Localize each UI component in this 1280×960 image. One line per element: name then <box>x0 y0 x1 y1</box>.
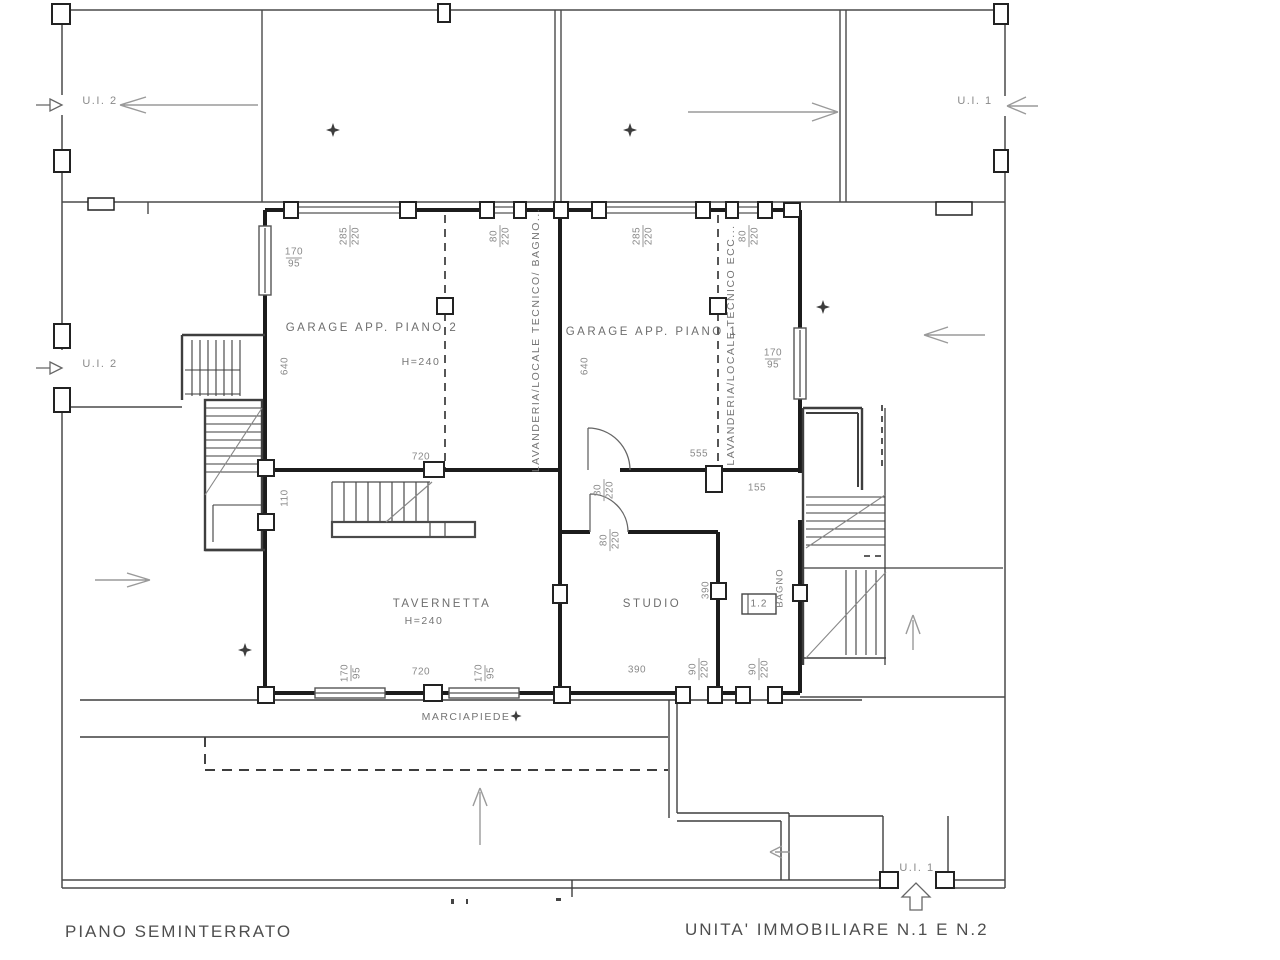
dim-tav-window-right: 170 95 <box>474 664 497 682</box>
sidewalk-and-lower-walls <box>80 700 948 897</box>
dim-mid-top-door: 80 220 <box>489 225 512 247</box>
stair-left <box>182 335 265 550</box>
sheet-title-floor: PIANO SEMINTERRATO <box>65 922 292 942</box>
dim-garage2-window: 170 95 <box>285 247 303 270</box>
dim-value: 170 <box>340 664 351 682</box>
stair-right <box>803 408 1003 665</box>
arrow-ui1-top <box>1007 97 1038 114</box>
room-label-garage2: GARAGE APP. PIANO 2 <box>286 322 459 334</box>
unit-label-ui2-side: U.I. 2 <box>82 358 117 370</box>
unit-label-ui1-bottom: U.I. 1 <box>899 862 934 874</box>
room-label-tavernetta-height: H=240 <box>405 615 444 627</box>
dim-value: 80 <box>599 534 610 546</box>
dim-value: 90 <box>688 663 699 675</box>
floor-plan-sheet: U.I. 2 U.I. 1 U.I. 2 U.I. 1 GARAGE APP. … <box>0 0 1280 960</box>
dim-value: 80 <box>489 230 500 242</box>
dim-value: 220 <box>604 479 616 501</box>
dim-value: 220 <box>759 658 771 680</box>
dim-bottom-door1: 90 220 <box>688 658 711 680</box>
arrow-bottom-up <box>473 788 487 845</box>
dim-value: 90 <box>748 663 759 675</box>
dim-value: 80 <box>593 484 604 496</box>
dim-value: 220 <box>610 529 622 551</box>
stair-middle <box>332 482 475 537</box>
arrow-top-left <box>120 97 258 113</box>
fixture-label: 1.2 <box>751 599 768 610</box>
room-label-laundry1: LAVANDERIA/LOCALE TECNICO ECC... <box>725 224 737 465</box>
arrow-small-left <box>770 846 790 858</box>
dim-studio-depth: 390 <box>701 581 712 599</box>
bottom-ticks <box>451 898 561 904</box>
arrow-top-middle-right <box>688 103 838 121</box>
dim-value: 285 <box>339 227 350 245</box>
sheet-title-units: UNITA' IMMOBILIARE N.1 E N.2 <box>685 920 989 940</box>
entry-arrow-ui1-bottom <box>902 883 930 910</box>
dim-value: 285 <box>632 227 643 245</box>
arrow-stair-up <box>906 615 920 650</box>
dim-garage2-width: 720 <box>412 452 430 463</box>
dim-right-top-door: 80 220 <box>738 225 761 247</box>
dim-value: 95 <box>485 665 497 681</box>
dim-garage1-door: 285 220 <box>632 225 655 247</box>
room-label-bagno: BAGNO <box>775 568 786 607</box>
dim-value: 170 <box>474 664 485 682</box>
dim-value: 95 <box>351 665 363 681</box>
floor-plan-drawing <box>0 0 1280 960</box>
dim-garage2-door: 285 220 <box>339 225 362 247</box>
dim-corridor-width: 155 <box>748 483 766 494</box>
unit-label-ui2-top: U.I. 2 <box>82 95 117 107</box>
label-marciapiede: MARCIAPIEDE <box>422 711 511 723</box>
dim-door2: 80 220 <box>599 529 622 551</box>
dim-value: 220 <box>350 225 362 247</box>
dim-value: 95 <box>765 359 781 371</box>
dim-value: 80 <box>738 230 749 242</box>
entry-arrow-ui2-side <box>36 362 62 374</box>
dim-value: 170 <box>764 348 782 359</box>
arrow-right-wing-left <box>924 327 985 343</box>
room-label-tavernetta: TAVERNETTA <box>393 598 491 610</box>
dim-bottom-door2: 90 220 <box>748 658 771 680</box>
room-label-laundry2: LAVANDERIA/LOCALE TECNICO/ BAGNO... <box>530 208 542 472</box>
dim-studio-width: 390 <box>628 665 646 676</box>
dim-door1: 80 220 <box>593 479 616 501</box>
room-label-garage2-height: H=240 <box>402 356 441 368</box>
room-label-studio: STUDIO <box>623 598 681 610</box>
dim-value: 220 <box>749 225 761 247</box>
dim-tav-window-left: 170 95 <box>340 664 363 682</box>
dim-value: 95 <box>286 258 302 270</box>
boundary-dashed-line <box>205 737 668 770</box>
room-label-garage1: GARAGE APP. PIANO 1 <box>566 326 739 338</box>
dim-tavernetta-width: 720 <box>412 667 430 678</box>
arrow-left-wing-right <box>95 573 150 587</box>
dim-value: 220 <box>500 225 512 247</box>
entry-arrows <box>36 99 930 910</box>
dim-wall-segment: 110 <box>280 489 291 506</box>
dim-garage1-window: 170 95 <box>764 348 782 371</box>
dim-value: 220 <box>699 658 711 680</box>
dim-value: 170 <box>285 247 303 258</box>
unit-label-ui1-top: U.I. 1 <box>957 95 992 107</box>
dim-value: 220 <box>643 225 655 247</box>
dim-garage1-depth: 640 <box>580 357 591 375</box>
dim-corridor-length: 555 <box>690 449 708 460</box>
dim-garage2-depth: 640 <box>280 357 291 375</box>
entry-arrow-ui2-top <box>36 99 62 111</box>
